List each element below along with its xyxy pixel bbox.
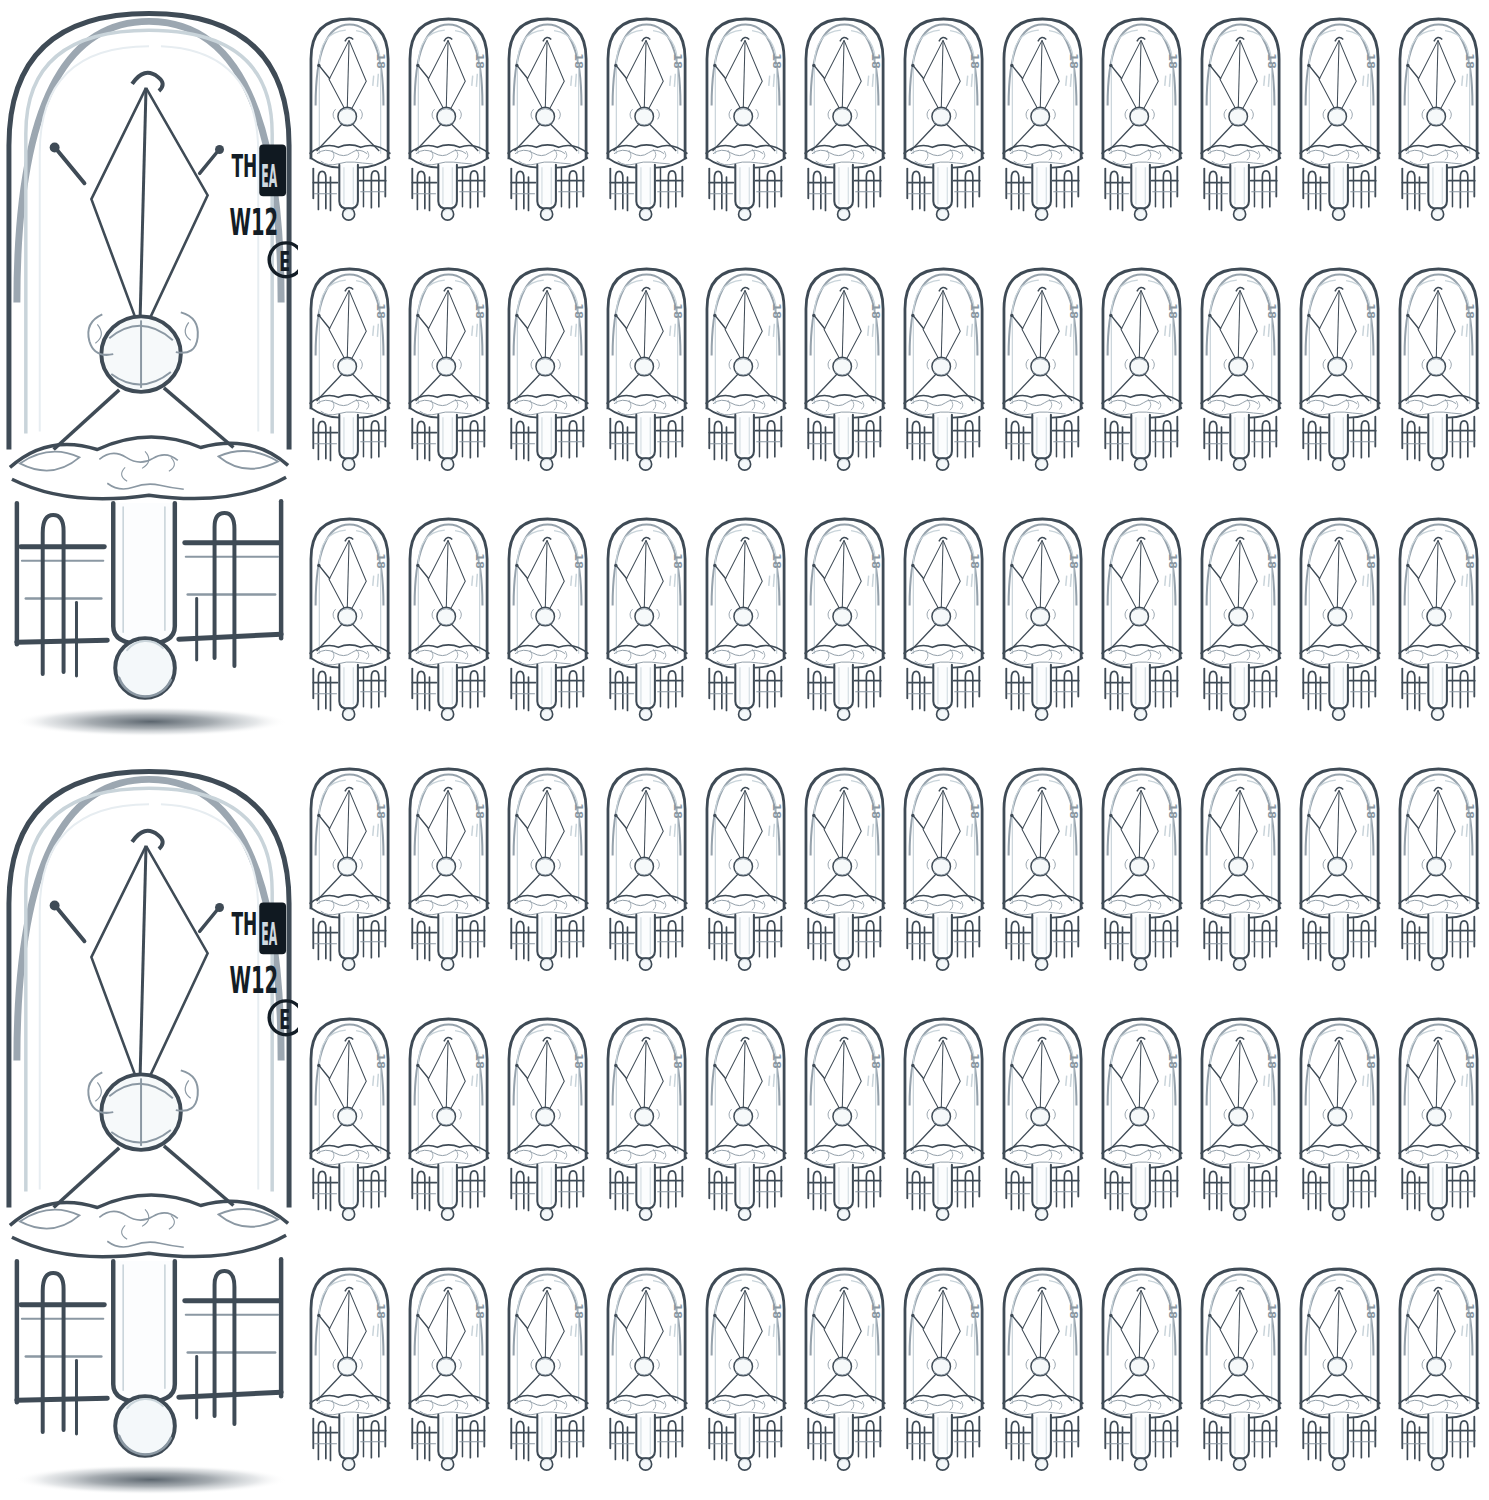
small-bulb-art [1195,755,1287,993]
small-bulb [795,1000,894,1250]
small-bulb-art [403,1255,495,1493]
small-bulb [300,750,399,1000]
small-bulb-art [502,1005,594,1243]
small-bulb-art [403,255,495,493]
small-bulb [300,500,399,750]
small-bulb [1390,1250,1489,1500]
small-bulb [696,1250,795,1500]
small-bulb-art [898,755,990,993]
small-bulb [696,250,795,500]
small-bulb [399,1250,498,1500]
small-bulb-art [304,1005,396,1243]
small-bulb [696,0,795,250]
small-bulb [300,250,399,500]
small-bulb-art [1096,1005,1188,1243]
large-bulb-bottom [0,760,298,1500]
small-bulb [1291,500,1390,750]
small-bulb [795,1250,894,1500]
small-bulb-art [799,1255,891,1493]
small-bulb [1390,750,1489,1000]
small-bulb [795,750,894,1000]
small-bulb [795,0,894,250]
small-bulb-art [601,255,693,493]
small-bulb [994,750,1093,1000]
small-bulb [1291,1250,1390,1500]
small-bulb [1390,0,1489,250]
small-bulb-art [1294,1255,1386,1493]
small-bulb-art [898,1005,990,1243]
small-bulb [994,1000,1093,1250]
small-bulb-art [1294,505,1386,743]
small-bulb-art [997,755,1089,993]
small-bulb [1291,250,1390,500]
small-bulb [895,250,994,500]
small-bulb-art [502,505,594,743]
small-bulb-art [700,1005,792,1243]
small-bulb [1390,500,1489,750]
small-bulb-art [1393,1255,1485,1493]
large-bulb-top [0,2,298,742]
small-bulb-art [601,505,693,743]
small-bulb-art [1195,5,1287,243]
small-bulb-art [403,755,495,993]
small-bulb-art [997,505,1089,743]
small-bulb [994,500,1093,750]
small-bulb-art [799,1005,891,1243]
small-bulb [1093,1000,1192,1250]
small-bulb-art [403,5,495,243]
small-bulb [994,250,1093,500]
small-bulb [895,1250,994,1500]
small-bulb-art [1096,505,1188,743]
small-bulb-art [1195,1255,1287,1493]
small-bulb-art [403,1005,495,1243]
small-bulb-art [502,255,594,493]
small-bulb-art [1393,755,1485,993]
product-photo-canvas: 18 [0,0,1489,1500]
small-bulb [498,500,597,750]
small-bulb [498,0,597,250]
small-bulb [895,1000,994,1250]
small-bulb [597,1000,696,1250]
small-bulb [1192,500,1291,750]
small-bulb-art [1294,5,1386,243]
small-bulb [994,1250,1093,1500]
small-bulb-art [1096,755,1188,993]
small-bulb-art [700,5,792,243]
small-bulb [1192,1000,1291,1250]
small-bulb [696,500,795,750]
small-bulb-art [700,755,792,993]
small-bulb-art [1294,755,1386,993]
small-bulb [597,500,696,750]
small-bulb-art [898,5,990,243]
small-bulb [1093,250,1192,500]
small-bulb-art [1393,255,1485,493]
small-bulb-art [1393,1005,1485,1243]
small-bulb [300,1250,399,1500]
small-bulb-art [898,255,990,493]
small-bulb [1093,750,1192,1000]
small-bulb [597,750,696,1000]
small-bulb-art [601,1005,693,1243]
small-bulb-art [1096,1255,1188,1493]
small-bulb [696,750,795,1000]
small-bulb [399,1000,498,1250]
small-bulb [1390,1000,1489,1250]
small-bulb-art [799,505,891,743]
small-bulb-art [601,1255,693,1493]
small-bulb-art [304,1255,396,1493]
small-bulb-art [502,755,594,993]
small-bulb-art [304,505,396,743]
small-bulb-art [799,755,891,993]
small-bulb [1390,250,1489,500]
small-bulb-art [799,5,891,243]
small-bulb-art [700,255,792,493]
small-bulb-grid [300,0,1489,1500]
small-bulb-art [1294,255,1386,493]
small-bulb [895,500,994,750]
small-bulb [1192,1250,1291,1500]
small-bulb [795,250,894,500]
small-bulb-art [304,755,396,993]
small-bulb [399,750,498,1000]
small-bulb [1093,500,1192,750]
small-bulb [1291,1000,1390,1250]
small-bulb [498,1250,597,1500]
small-bulb [1093,1250,1192,1500]
small-bulb-art [502,5,594,243]
small-bulb [1192,0,1291,250]
small-bulb [399,500,498,750]
small-bulb-art [1393,5,1485,243]
small-bulb-art [700,505,792,743]
small-bulb [399,0,498,250]
small-bulb-art [799,255,891,493]
small-bulb-art [997,5,1089,243]
small-bulb [300,0,399,250]
small-bulb-art [1195,505,1287,743]
small-bulb-art [1096,5,1188,243]
small-bulb-art [1195,1005,1287,1243]
small-bulb-art [601,5,693,243]
small-bulb-art [1195,255,1287,493]
small-bulb-art [1294,1005,1386,1243]
small-bulb-art [898,505,990,743]
small-bulb-art [1096,255,1188,493]
small-bulb [498,750,597,1000]
small-bulb-art [700,1255,792,1493]
small-bulb [1291,0,1390,250]
small-bulb [795,500,894,750]
small-bulb-art [997,1005,1089,1243]
small-bulb [597,1250,696,1500]
small-bulb-art [997,255,1089,493]
small-bulb-art [601,755,693,993]
small-bulb-art [502,1255,594,1493]
small-bulb-art [997,1255,1089,1493]
small-bulb-art [304,255,396,493]
small-bulb-art [1393,505,1485,743]
small-bulb [895,750,994,1000]
small-bulb-art [304,5,396,243]
small-bulb [597,0,696,250]
small-bulb [994,0,1093,250]
small-bulb [1192,750,1291,1000]
small-bulb [498,250,597,500]
small-bulb [300,1000,399,1250]
small-bulb [597,250,696,500]
small-bulb [895,0,994,250]
small-bulb [1291,750,1390,1000]
small-bulb [498,1000,597,1250]
small-bulb [399,250,498,500]
small-bulb [1093,0,1192,250]
small-bulb-art [403,505,495,743]
small-bulb [696,1000,795,1250]
small-bulb [1192,250,1291,500]
small-bulb-art [898,1255,990,1493]
